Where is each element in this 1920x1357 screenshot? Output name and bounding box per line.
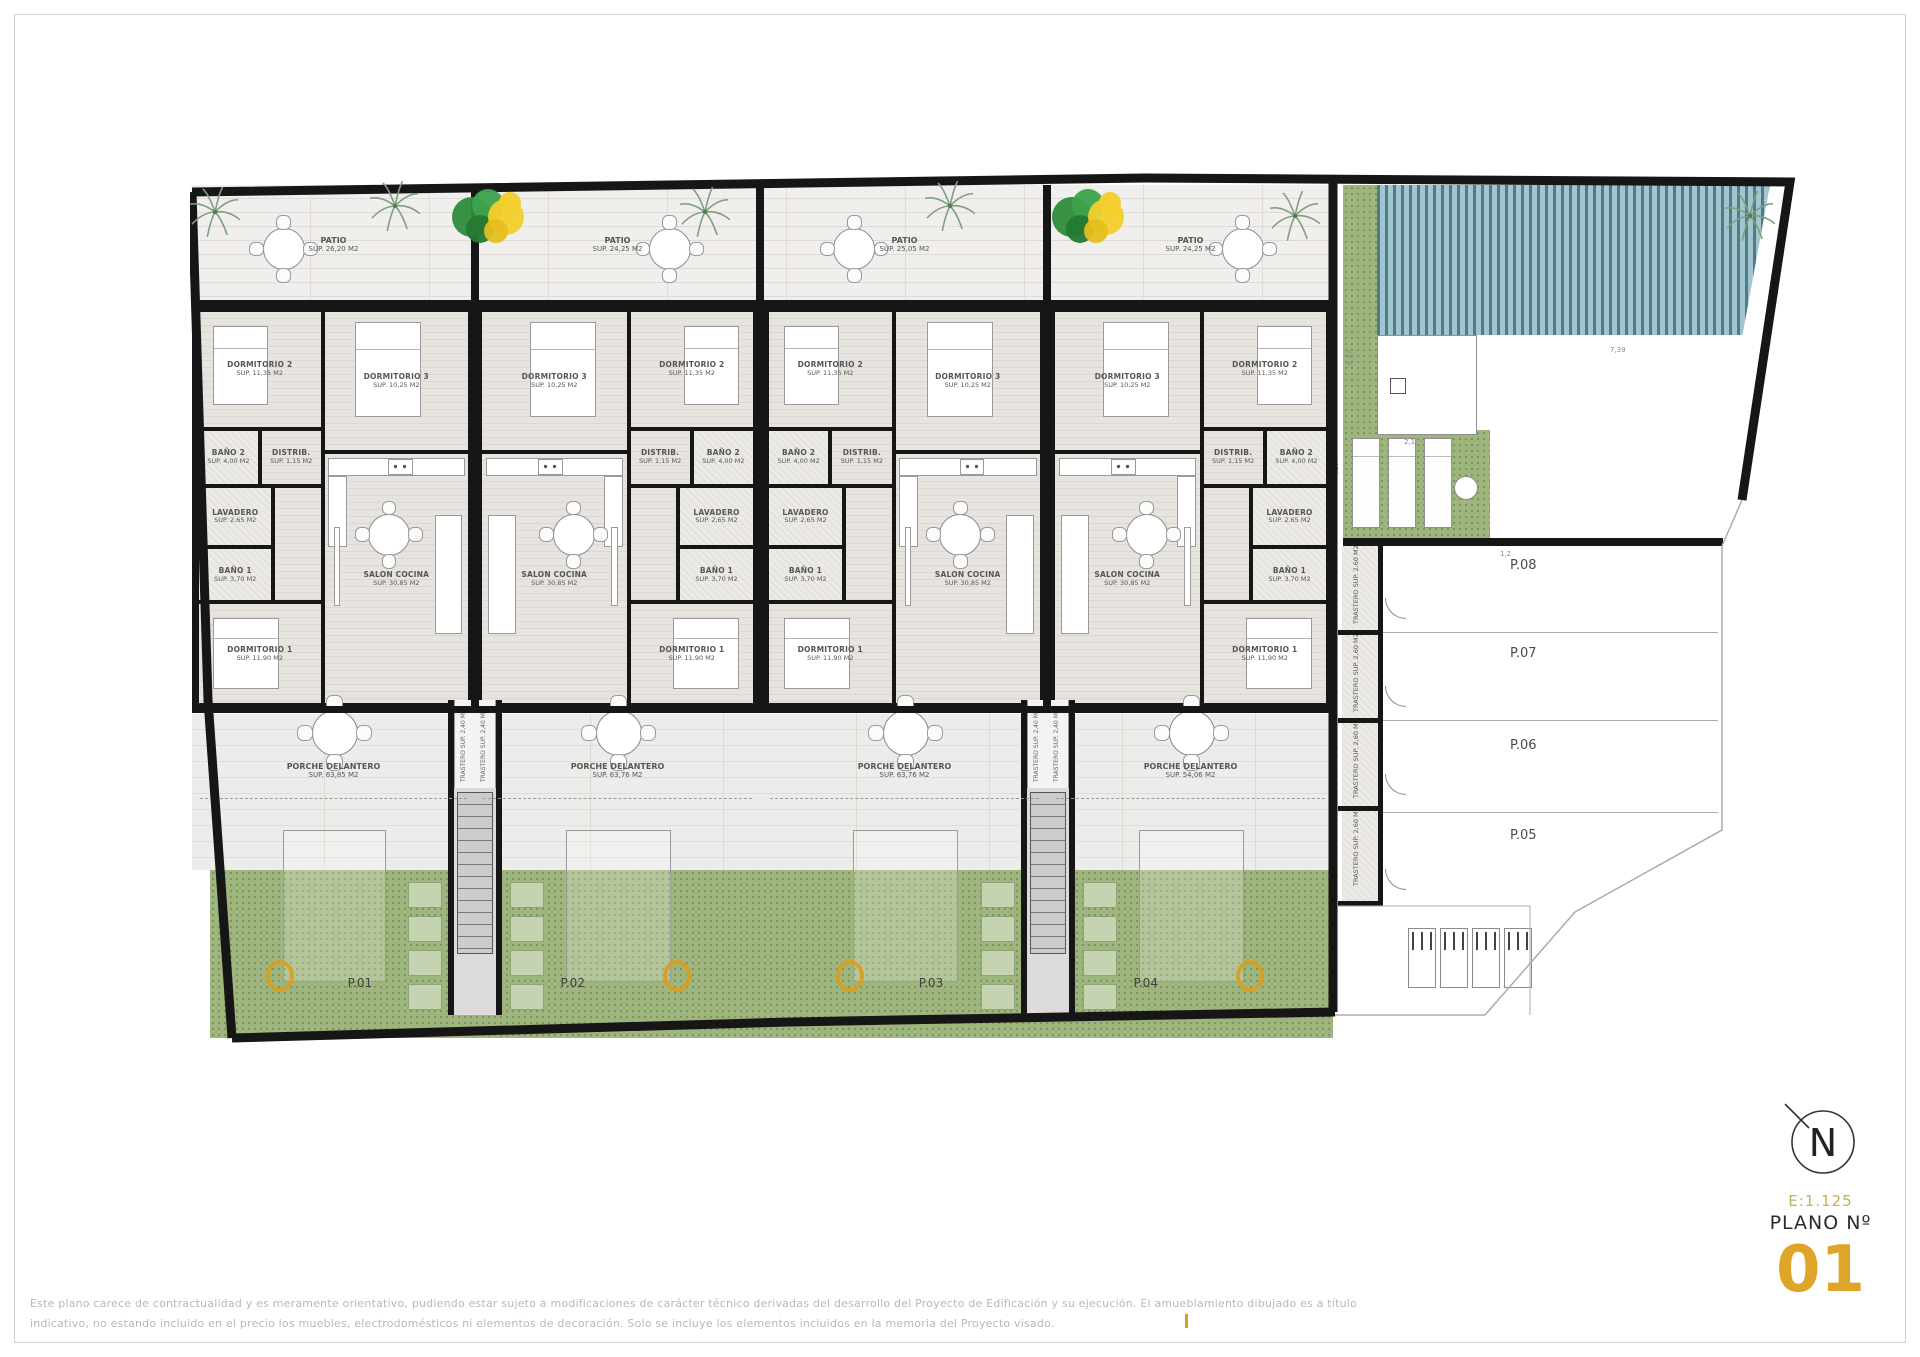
room-name: LAVADERO	[212, 508, 258, 518]
unit-P.02: DORMITORIO 2SUP. 11,35 M2DORMITORIO 3SUP…	[475, 305, 760, 710]
stair-steps	[457, 792, 493, 954]
stair-planter	[981, 882, 1015, 908]
porche-table	[883, 710, 927, 754]
stair-steps	[1030, 792, 1066, 954]
table-top	[553, 514, 595, 556]
room-label: DISTRIB.SUP. 1,15 M2	[1204, 431, 1263, 484]
room-label: BAÑO 1SUP. 3,70 M2	[680, 549, 753, 600]
porche-name: PORCHE DELANTERO	[835, 762, 975, 771]
room-area: SUP. 30,85 M2	[1104, 580, 1150, 588]
stair-planter	[510, 984, 544, 1010]
chair	[1139, 554, 1154, 569]
disclaimer-line2: indicativo, no estando incluido en el pr…	[30, 1314, 1550, 1334]
dimension-label: 1,2	[1500, 550, 1511, 558]
room-area: SUP. 1,15 M2	[841, 458, 883, 466]
furniture-bed	[355, 322, 421, 417]
furniture-bed	[213, 618, 279, 689]
stair-storage-label: TRASTERO SUP. 2,40 M2	[1053, 708, 1060, 782]
parking-line	[1382, 812, 1718, 813]
bike-rack	[1408, 928, 1436, 988]
pool-pump-room	[1377, 335, 1477, 435]
patio-name: PATIO	[845, 236, 965, 245]
room-bano-2: BAÑO 2SUP. 4,00 M2	[1265, 429, 1328, 486]
dimension-label: 9,47	[1346, 350, 1354, 366]
pump-icon	[1390, 378, 1406, 394]
table-top	[312, 710, 358, 756]
patio-name: PATIO	[1131, 236, 1251, 245]
floor-plan: TRASTERO SUP. 2,60 M2 TRASTERO SUP. 2,60…	[190, 170, 1800, 1070]
party-wall	[471, 185, 479, 706]
dining-table	[939, 514, 979, 554]
plot-label: P.02	[561, 976, 585, 990]
room-distribuidor: DISTRIB.SUP. 1,15 M2	[629, 429, 692, 486]
chair	[593, 527, 608, 542]
room-lavadero: LAVADEROSUP. 2,65 M2	[1251, 486, 1328, 547]
furniture-sofa	[435, 515, 462, 634]
furniture-hob	[538, 459, 563, 475]
building-porche-wall	[192, 706, 1333, 713]
room-name: DISTRIB.	[843, 448, 881, 458]
room-name: BAÑO 1	[1273, 566, 1306, 576]
room-distribuidor: DISTRIB.SUP. 1,15 M2	[830, 429, 893, 486]
chair	[1235, 215, 1250, 230]
patio-area: SUP. 24,25 M2	[1131, 245, 1251, 253]
porche-name: PORCHE DELANTERO	[264, 762, 404, 771]
parking-line	[1382, 720, 1718, 721]
room-area: SUP. 4,00 M2	[207, 458, 249, 466]
room-label: BAÑO 1SUP. 3,70 M2	[199, 549, 271, 600]
chair	[566, 501, 581, 516]
patio-name: PATIO	[558, 236, 678, 245]
room-label: LAVADEROSUP. 2,65 M2	[199, 488, 271, 545]
storage-label: TRASTERO SUP. 2,60 M2	[1352, 736, 1360, 798]
porche-label: PORCHE DELANTEROSUP. 63,76 M2	[548, 762, 688, 779]
chair	[847, 215, 862, 230]
stair-planter	[981, 984, 1015, 1010]
porche-area: SUP. 63,76 M2	[548, 771, 688, 779]
sun-lounger	[1388, 438, 1416, 528]
room-label: BAÑO 1SUP. 3,70 M2	[769, 549, 842, 600]
stair-planter	[510, 882, 544, 908]
north-arrow-icon: N	[1775, 1090, 1867, 1186]
plano-number: 01	[1738, 1238, 1903, 1302]
dimension-label: 7,39	[1610, 346, 1626, 354]
chair	[1112, 527, 1127, 542]
pool-side-lawn	[1343, 185, 1377, 430]
stair-planter	[408, 984, 442, 1010]
chair	[689, 242, 704, 257]
chair	[382, 554, 397, 569]
porche-area: SUP. 63,76 M2	[835, 771, 975, 779]
room-label: BAÑO 1SUP. 3,70 M2	[1253, 549, 1326, 600]
room-label: LAVADEROSUP. 2,65 M2	[1253, 488, 1326, 545]
stair-storage-label: TRASTERO SUP. 2,40 M2	[460, 708, 467, 782]
room-label: BAÑO 2SUP. 4,00 M2	[694, 431, 753, 484]
stair-planter	[981, 950, 1015, 976]
porche-table	[1169, 710, 1213, 754]
furniture-bed	[1257, 326, 1312, 405]
chair	[926, 527, 941, 542]
table-top	[368, 514, 410, 556]
stair-planter	[1083, 882, 1117, 908]
patio-name: PATIO	[274, 236, 394, 245]
furniture-bed	[530, 322, 596, 417]
stair-planter	[408, 916, 442, 942]
room-bano-1: BAÑO 1SUP. 3,70 M2	[678, 547, 755, 602]
porche-dashed-line	[770, 798, 1039, 799]
furniture-hob	[1111, 459, 1136, 475]
bike-rack	[1440, 928, 1468, 988]
swimming-pool	[1377, 185, 1770, 335]
room-area: SUP. 3,70 M2	[214, 576, 256, 584]
room-bano-1: BAÑO 1SUP. 3,70 M2	[767, 547, 844, 602]
chair	[276, 215, 291, 230]
porche-dashed-line	[200, 798, 467, 799]
disclaimer: Este plano carece de contractualidad y e…	[30, 1294, 1550, 1335]
room-name: BAÑO 1	[700, 566, 733, 576]
room-area: SUP. 2,65 M2	[1268, 517, 1310, 525]
room-area: SUP. 4,00 M2	[778, 458, 820, 466]
dining-table	[1126, 514, 1166, 554]
room-name: DISTRIB.	[1214, 448, 1252, 458]
room-area: SUP. 1,15 M2	[639, 458, 681, 466]
garden-marker-icon	[1236, 960, 1264, 992]
room-name: BAÑO 1	[789, 566, 822, 576]
room-area: SUP. 30,85 M2	[531, 580, 577, 588]
stair-planter	[510, 916, 544, 942]
storage-door-arc	[1385, 869, 1406, 890]
garden-path	[566, 830, 671, 982]
room-bano-2: BAÑO 2SUP. 4,00 M2	[767, 429, 830, 486]
garden-marker-icon	[663, 960, 691, 992]
porche-table	[596, 710, 640, 754]
room-label: LAVADEROSUP. 2,65 M2	[680, 488, 753, 545]
room-name: SALON COCINA	[363, 570, 429, 580]
furniture-bed	[1246, 618, 1312, 689]
chair	[408, 527, 423, 542]
storage-door-arc	[1385, 686, 1406, 707]
furniture-bed	[1103, 322, 1169, 417]
dimension-label: 4,10	[1332, 462, 1340, 478]
page: TRASTERO SUP. 2,60 M2 TRASTERO SUP. 2,60…	[0, 0, 1920, 1357]
storage-wall	[1338, 630, 1382, 635]
room-area: SUP. 2,65 M2	[214, 517, 256, 525]
north-letter: N	[1808, 1121, 1836, 1165]
unit-P.01: DORMITORIO 2SUP. 11,35 M2DORMITORIO 3SUP…	[192, 305, 475, 710]
chair	[1213, 725, 1229, 741]
chair	[820, 242, 835, 257]
chair	[847, 268, 862, 283]
room-area: SUP. 1,15 M2	[1212, 458, 1254, 466]
chair	[1262, 242, 1277, 257]
patio-area: SUP. 26,20 M2	[274, 245, 394, 253]
room-area: SUP. 2,65 M2	[784, 517, 826, 525]
room-name: BAÑO 1	[219, 566, 252, 576]
porche-dashed-line	[1056, 798, 1325, 799]
room-area: SUP. 30,85 M2	[945, 580, 991, 588]
chair	[1166, 527, 1181, 542]
furniture-sofa	[488, 515, 516, 634]
room-label: DISTRIB.SUP. 1,15 M2	[832, 431, 891, 484]
room-area: SUP. 3,70 M2	[695, 576, 737, 584]
room-lavadero: LAVADEROSUP. 2,65 M2	[678, 486, 755, 547]
porche-label: PORCHE DELANTEROSUP. 63,85 M2	[264, 762, 404, 779]
furniture-bed	[684, 326, 739, 405]
chair	[581, 725, 597, 741]
room-name: BAÑO 2	[1280, 448, 1313, 458]
porche-table	[312, 710, 356, 754]
porche-label: PORCHE DELANTEROSUP. 54,06 M2	[1121, 762, 1261, 779]
stairwell: TRASTERO SUP. 2,40 M2 TRASTERO SUP. 2,40…	[448, 700, 502, 1015]
patio-area: SUP. 24,25 M2	[558, 245, 678, 253]
patio-label: PATIOSUP. 26,20 M2	[274, 236, 394, 253]
disclaimer-line1: Este plano carece de contractualidad y e…	[30, 1294, 1550, 1314]
room-name: DISTRIB.	[641, 448, 679, 458]
room-bano-2: BAÑO 2SUP. 4,00 M2	[197, 429, 260, 486]
room-area: SUP. 4,00 M2	[702, 458, 744, 466]
chair	[1154, 725, 1170, 741]
room-name: BAÑO 2	[707, 448, 740, 458]
chair	[539, 527, 554, 542]
room-bano-1: BAÑO 1SUP. 3,70 M2	[197, 547, 273, 602]
room-bano-1: BAÑO 1SUP. 3,70 M2	[1251, 547, 1328, 602]
table-top	[1126, 514, 1168, 556]
storage-door-arc	[1385, 774, 1406, 795]
title-block: N E:1.125 PLANO Nº 01	[1738, 1090, 1903, 1302]
storage-label: TRASTERO SUP. 2,60 M2	[1352, 650, 1360, 712]
chair	[868, 725, 884, 741]
garden-marker-icon	[836, 960, 864, 992]
chair	[953, 501, 968, 516]
parking-space-label: P.07	[1510, 646, 1537, 661]
patio-label: PATIOSUP. 24,25 M2	[1131, 236, 1251, 253]
patio-area: SUP. 25,05 M2	[845, 245, 965, 253]
chair	[662, 268, 677, 283]
chair	[356, 725, 372, 741]
room-label: BAÑO 2SUP. 4,00 M2	[769, 431, 828, 484]
chair	[980, 527, 995, 542]
table-top	[883, 710, 929, 756]
stair-planter	[510, 950, 544, 976]
storage-wall	[1338, 901, 1382, 906]
furniture-bed	[213, 326, 268, 405]
parking-space-label: P.06	[1510, 738, 1537, 753]
furniture-shelf	[905, 527, 912, 606]
chair	[276, 268, 291, 283]
porche-area: SUP. 54,06 M2	[1121, 771, 1261, 779]
stairwell: TRASTERO SUP. 2,40 M2 TRASTERO SUP. 2,40…	[1021, 700, 1075, 1015]
porche-name: PORCHE DELANTERO	[548, 762, 688, 771]
furniture-shelf	[611, 527, 618, 606]
garden-path	[1139, 830, 1244, 982]
scale-label: E:1.125	[1738, 1192, 1903, 1210]
room-name: LAVADERO	[782, 508, 828, 518]
room-pasillo	[629, 486, 679, 603]
gold-tick	[1185, 1314, 1188, 1328]
room-bano-2: BAÑO 2SUP. 4,00 M2	[692, 429, 755, 486]
furniture-bed	[784, 618, 850, 689]
room-name: SALON COCINA	[1094, 570, 1160, 580]
patio-label: PATIOSUP. 25,05 M2	[845, 236, 965, 253]
furniture-shelf	[334, 527, 341, 606]
chair	[662, 215, 677, 230]
room-area: SUP. 30,85 M2	[373, 580, 419, 588]
furniture-bed	[673, 618, 739, 689]
furniture-sofa	[1006, 515, 1034, 634]
stair-storage-label: TRASTERO SUP. 2,40 M2	[480, 708, 487, 782]
room-lavadero: LAVADEROSUP. 2,65 M2	[767, 486, 844, 547]
table-top	[596, 710, 642, 756]
bike-rack	[1472, 928, 1500, 988]
stair-planter	[1083, 950, 1117, 976]
chair	[1139, 501, 1154, 516]
room-area: SUP. 2,65 M2	[695, 517, 737, 525]
furniture-sofa	[1061, 515, 1089, 634]
party-wall	[756, 185, 764, 706]
room-name: DISTRIB.	[272, 448, 310, 458]
stair-planter	[408, 950, 442, 976]
furniture-hob	[960, 459, 985, 475]
room-name: SALON COCINA	[521, 570, 587, 580]
room-distribuidor: DISTRIB.SUP. 1,15 M2	[1202, 429, 1265, 486]
room-pasillo	[1202, 486, 1252, 603]
plot-label: P.01	[348, 976, 372, 990]
dimension-label: 2,1	[1404, 438, 1415, 446]
chair	[355, 527, 370, 542]
table-top	[1169, 710, 1215, 756]
furniture-hob	[388, 459, 413, 475]
garden-marker-icon	[266, 960, 294, 992]
storage-label: TRASTERO SUP. 2,60 M2	[1352, 562, 1360, 624]
party-wall	[1043, 185, 1051, 706]
storage-label: TRASTERO SUP. 2,60 M2	[1352, 824, 1360, 886]
room-pasillo	[844, 486, 894, 603]
room-name: LAVADERO	[1266, 508, 1312, 518]
unit-P.03: DORMITORIO 2SUP. 11,35 M2DORMITORIO 3SUP…	[762, 305, 1047, 710]
patio-label: PATIOSUP. 24,25 M2	[558, 236, 678, 253]
storage-wall	[1338, 718, 1382, 723]
garden-path	[283, 830, 387, 982]
stair-planter	[1083, 984, 1117, 1010]
stair-planter	[981, 916, 1015, 942]
dining-table	[368, 514, 408, 554]
plano-label: PLANO Nº	[1738, 1212, 1903, 1234]
plot-label: P.04	[1134, 976, 1158, 990]
room-name: SALON COCINA	[935, 570, 1001, 580]
furniture-bed	[784, 326, 839, 405]
storage-wall	[1378, 546, 1383, 906]
porche-name: PORCHE DELANTERO	[1121, 762, 1261, 771]
sun-lounger	[1352, 438, 1380, 528]
parking-space-label: P.05	[1510, 828, 1537, 843]
room-area: SUP. 3,70 M2	[784, 576, 826, 584]
porche-label: PORCHE DELANTEROSUP. 63,76 M2	[835, 762, 975, 779]
stair-storage-label: TRASTERO SUP. 2,40 M2	[1033, 708, 1040, 782]
storage-door-arc	[1385, 598, 1406, 619]
room-area: SUP. 1,15 M2	[270, 458, 312, 466]
dining-table	[553, 514, 593, 554]
chair	[297, 725, 313, 741]
storage-wall	[1338, 806, 1382, 811]
furniture-shelf	[1184, 527, 1191, 606]
chair	[382, 501, 397, 516]
lawn-parking-wall	[1343, 538, 1723, 546]
porche-area: SUP. 63,85 M2	[264, 771, 404, 779]
room-name: BAÑO 2	[782, 448, 815, 458]
room-label: BAÑO 2SUP. 4,00 M2	[199, 431, 258, 484]
bike-rack	[1504, 928, 1532, 988]
stair-planter	[1083, 916, 1117, 942]
table-top	[939, 514, 981, 556]
room-name: BAÑO 2	[212, 448, 245, 458]
parking-space-label: P.08	[1510, 558, 1537, 573]
room-area: SUP. 3,70 M2	[1268, 576, 1310, 584]
porche-dashed-line	[483, 798, 752, 799]
furniture-bed	[927, 322, 993, 417]
room-area: SUP. 4,00 M2	[1275, 458, 1317, 466]
parking-line	[1382, 632, 1718, 633]
garden-path	[853, 830, 958, 982]
sun-lounger	[1424, 438, 1452, 528]
room-label: LAVADEROSUP. 2,65 M2	[769, 488, 842, 545]
stair-planter	[408, 882, 442, 908]
storage-column	[1342, 546, 1382, 906]
plot-label: P.03	[919, 976, 943, 990]
room-distribuidor: DISTRIB.SUP. 1,15 M2	[260, 429, 323, 486]
room-name: LAVADERO	[693, 508, 739, 518]
chair	[1235, 268, 1250, 283]
chair	[249, 242, 264, 257]
room-label: BAÑO 2SUP. 4,00 M2	[1267, 431, 1326, 484]
chair	[566, 554, 581, 569]
room-pasillo	[273, 486, 322, 603]
chair	[640, 725, 656, 741]
chair	[953, 554, 968, 569]
room-label: DISTRIB.SUP. 1,15 M2	[262, 431, 321, 484]
chair	[927, 725, 943, 741]
room-lavadero: LAVADEROSUP. 2,65 M2	[197, 486, 273, 547]
room-label: DISTRIB.SUP. 1,15 M2	[631, 431, 690, 484]
unit-P.04: DORMITORIO 2SUP. 11,35 M2DORMITORIO 3SUP…	[1048, 305, 1333, 710]
